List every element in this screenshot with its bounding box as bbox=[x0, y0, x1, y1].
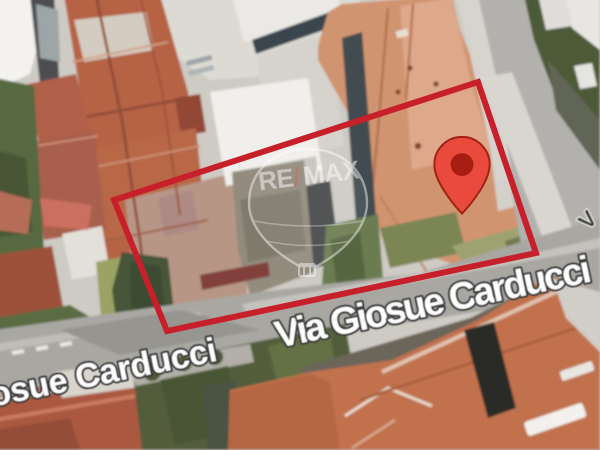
svg-text:RE: RE bbox=[257, 162, 296, 196]
